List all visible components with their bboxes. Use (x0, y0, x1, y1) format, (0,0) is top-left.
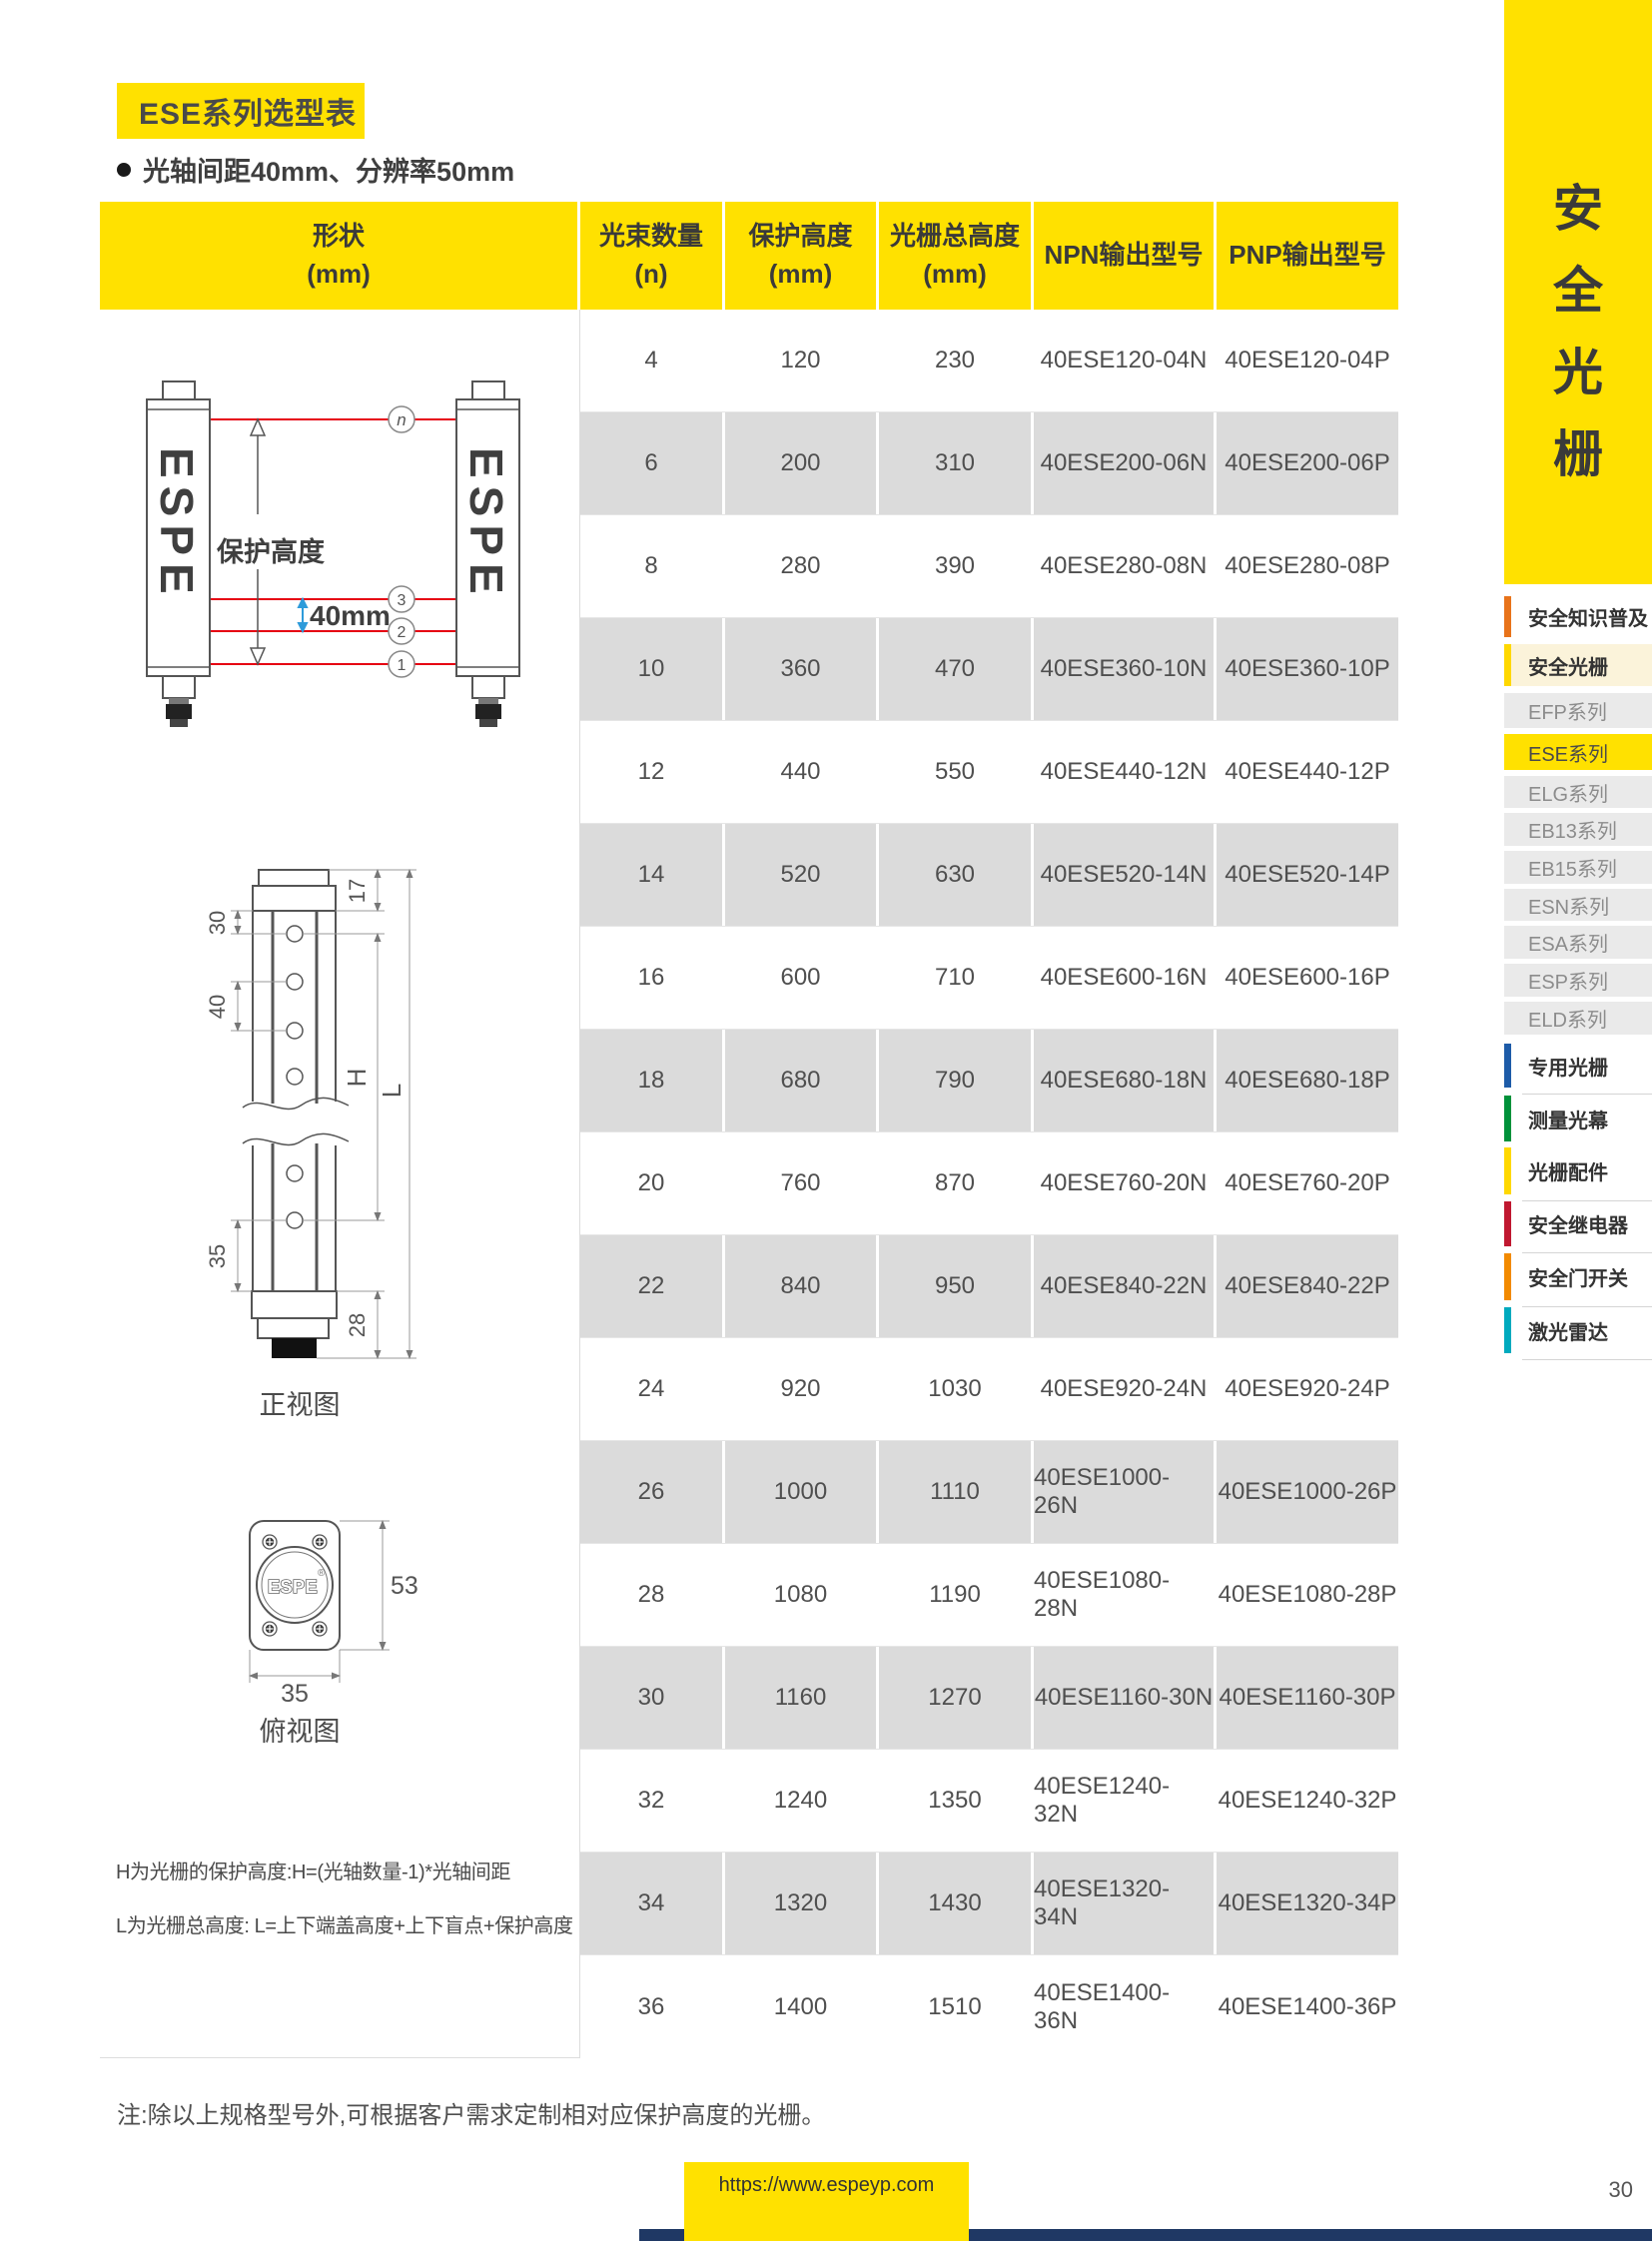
cell-npn-model: 40ESE1320-34N (1034, 1853, 1217, 1954)
sidebar-item-esa-series[interactable]: ESA系列 (1504, 926, 1652, 959)
sidebar-item-special-light-curtain[interactable]: 专用光栅 (1504, 1044, 1652, 1088)
cell-beam-count: 36 (580, 1955, 725, 2058)
cell-beam-count: 8 (580, 515, 725, 617)
cell-npn-model: 40ESE920-24N (1034, 1338, 1217, 1440)
footer-url-box: https://www.espeyp.com (684, 2162, 969, 2241)
front-view-diagram: 17 30 40 H L 35 28 (205, 854, 424, 1413)
category-color-bar (1504, 596, 1511, 637)
sidebar-item-safety-relay[interactable]: 安全继电器 (1504, 1201, 1652, 1246)
beam-number-markers: n 3 2 1 (389, 406, 414, 677)
cell-pnp-model: 40ESE1080-28P (1217, 1544, 1398, 1646)
cell-total-height: 1510 (879, 1955, 1034, 2058)
cell-protection-height: 1320 (725, 1853, 879, 1954)
cell-beam-count: 14 (580, 824, 725, 926)
cell-total-height: 1270 (879, 1647, 1034, 1749)
table-row: 8 280 390 40ESE280-08N 40ESE280-08P (580, 515, 1398, 618)
front-view-connector (272, 1338, 317, 1358)
header-beam-count: 光束数量(n) (580, 202, 725, 310)
cell-pnp-model: 40ESE1400-36P (1217, 1955, 1398, 2058)
sidebar-item-laser-radar[interactable]: 激光雷达 (1504, 1307, 1652, 1353)
cell-beam-count: 12 (580, 721, 725, 823)
table-row: 32 1240 1350 40ESE1240-32N 40ESE1240-32P (580, 1750, 1398, 1853)
table-row: 10 360 470 40ESE360-10N 40ESE360-10P (580, 618, 1398, 721)
top-view-diagram: ESPE ® 53 35 (245, 1513, 429, 1708)
category-color-bar (1504, 644, 1511, 686)
sidebar-category-banner: 安全光栅 (1504, 0, 1652, 584)
cell-npn-model: 40ESE760-20N (1034, 1132, 1217, 1234)
protection-height-label: 保护高度 (216, 536, 325, 567)
cell-pnp-model: 40ESE440-12P (1217, 721, 1398, 823)
cell-protection-height: 600 (725, 927, 879, 1029)
cell-beam-count: 16 (580, 927, 725, 1029)
cell-pnp-model: 40ESE280-08P (1217, 515, 1398, 617)
table-header-row: 形状(mm) 光束数量(n) 保护高度(mm) 光栅总高度(mm) NPN输出型… (100, 202, 1398, 310)
footer-url-link[interactable]: https://www.espeyp.com (719, 2174, 935, 2197)
table-row: 4 120 230 40ESE120-04N 40ESE120-04P (580, 310, 1398, 412)
table-row: 22 840 950 40ESE840-22N 40ESE840-22P (580, 1235, 1398, 1338)
cell-total-height: 1190 (879, 1544, 1034, 1646)
left-connector (166, 698, 192, 727)
cell-npn-model: 40ESE680-18N (1034, 1030, 1217, 1131)
formula-protection-height: H为光栅的保护高度:H=(光轴数量-1)*光轴间距 (116, 1856, 510, 1884)
cell-protection-height: 200 (725, 412, 879, 514)
cell-total-height: 1350 (879, 1750, 1034, 1852)
cell-total-height: 470 (879, 618, 1034, 720)
svg-text:3: 3 (398, 592, 407, 609)
cell-beam-count: 6 (580, 412, 725, 514)
cell-pnp-model: 40ESE1240-32P (1217, 1750, 1398, 1852)
svg-text:1: 1 (398, 657, 407, 674)
cell-total-height: 390 (879, 515, 1034, 617)
custom-order-note: 注:除以上规格型号外,可根据客户需求定制相对应保护高度的光栅。 (117, 2095, 825, 2130)
cell-protection-height: 680 (725, 1030, 879, 1131)
cell-total-height: 1030 (879, 1338, 1034, 1440)
cell-protection-height: 760 (725, 1132, 879, 1234)
formula-total-height: L为光栅总高度: L=上下端盖高度+上下盲点+保护高度 (116, 1909, 573, 1938)
svg-text:40: 40 (205, 995, 230, 1019)
table-row: 24 920 1030 40ESE920-24N 40ESE920-24P (580, 1338, 1398, 1441)
svg-text:L: L (377, 1084, 407, 1098)
cell-total-height: 790 (879, 1030, 1034, 1131)
sidebar-item-safety-door-switch[interactable]: 安全门开关 (1504, 1253, 1652, 1300)
header-total-height: 光栅总高度(mm) (879, 202, 1034, 310)
top-view-height-dim: 53 (391, 1572, 418, 1600)
sidebar-vertical-title: 安全光栅 (1504, 168, 1652, 495)
svg-text:2: 2 (398, 624, 407, 641)
sidebar-item-efp-series[interactable]: EFP系列 (1504, 693, 1652, 728)
cell-protection-height: 840 (725, 1235, 879, 1337)
sidebar-item-ese-series[interactable]: ESE系列 (1504, 734, 1652, 770)
cell-npn-model: 40ESE1000-26N (1034, 1441, 1217, 1543)
page-title: ESE系列选型表 (117, 83, 365, 139)
cell-total-height: 950 (879, 1235, 1034, 1337)
sidebar-item-elg-series[interactable]: ELG系列 (1504, 776, 1652, 808)
cell-protection-height: 520 (725, 824, 879, 926)
shape-column: ESPE ESPE (100, 310, 580, 2058)
sidebar-item-eb13-series[interactable]: EB13系列 (1504, 813, 1652, 846)
sidebar-item-safety-knowledge[interactable]: 安全知识普及 (1504, 596, 1652, 637)
cell-pnp-model: 40ESE920-24P (1217, 1338, 1398, 1440)
sidebar-item-safety-light-curtain[interactable]: 安全光栅 (1504, 644, 1652, 686)
cell-total-height: 230 (879, 310, 1034, 411)
cell-pnp-model: 40ESE520-14P (1217, 824, 1398, 926)
top-view-width-dim: 35 (281, 1680, 309, 1708)
cell-beam-count: 28 (580, 1544, 725, 1646)
cell-pnp-model: 40ESE600-16P (1217, 927, 1398, 1029)
cell-protection-height: 920 (725, 1338, 879, 1440)
cell-beam-count: 22 (580, 1235, 725, 1337)
sidebar-item-light-curtain-accessories[interactable]: 光栅配件 (1504, 1147, 1652, 1194)
cell-beam-count: 32 (580, 1750, 725, 1852)
cell-beam-count: 4 (580, 310, 725, 411)
table-row: 28 1080 1190 40ESE1080-28N 40ESE1080-28P (580, 1544, 1398, 1647)
cell-npn-model: 40ESE1400-36N (1034, 1955, 1217, 2058)
top-view-brand: ESPE (268, 1577, 318, 1597)
cell-protection-height: 1160 (725, 1647, 879, 1749)
table-row: 12 440 550 40ESE440-12N 40ESE440-12P (580, 721, 1398, 824)
table-row: 30 1160 1270 40ESE1160-30N 40ESE1160-30P (580, 1647, 1398, 1750)
svg-text:28: 28 (345, 1313, 370, 1337)
cell-total-height: 1430 (879, 1853, 1034, 1954)
catalog-page: ESE系列选型表 光轴间距40mm、分辨率50mm 形状(mm) 光束数量(n)… (0, 0, 1652, 2241)
svg-text:35: 35 (205, 1244, 230, 1268)
category-color-bar (1504, 1044, 1511, 1088)
cell-npn-model: 40ESE840-22N (1034, 1235, 1217, 1337)
page-number: 30 (1583, 2177, 1633, 2203)
pitch-label: 40mm (310, 600, 391, 631)
cell-total-height: 870 (879, 1132, 1034, 1234)
svg-text:17: 17 (345, 879, 370, 903)
right-tower-brand: ESPE (460, 447, 512, 602)
cell-pnp-model: 40ESE1000-26P (1217, 1441, 1398, 1543)
header-protection-height: 保护高度(mm) (725, 202, 879, 310)
cell-protection-height: 120 (725, 310, 879, 411)
category-color-bar (1504, 1096, 1511, 1141)
cell-beam-count: 10 (580, 618, 725, 720)
left-tower-brand: ESPE (151, 447, 203, 602)
beam-holes (287, 926, 303, 1228)
registered-mark-icon: ® (318, 1568, 326, 1579)
dimension-lines (231, 870, 416, 1358)
cell-npn-model: 40ESE120-04N (1034, 310, 1217, 411)
cell-npn-model: 40ESE1080-28N (1034, 1544, 1217, 1646)
cell-npn-model: 40ESE600-16N (1034, 927, 1217, 1029)
spec-subtitle: 光轴间距40mm、分辨率50mm (117, 150, 514, 189)
cell-npn-model: 40ESE280-08N (1034, 515, 1217, 617)
sidebar-item-eld-series[interactable]: ELD系列 (1504, 1002, 1652, 1035)
table-row: 6 200 310 40ESE200-06N 40ESE200-06P (580, 412, 1398, 515)
svg-text:30: 30 (205, 911, 230, 935)
cell-beam-count: 18 (580, 1030, 725, 1131)
beam-arrangement-diagram: ESPE ESPE (100, 370, 580, 749)
category-color-bar (1504, 1147, 1511, 1194)
cell-protection-height: 1000 (725, 1441, 879, 1543)
table-row: 16 600 710 40ESE600-16N 40ESE600-16P (580, 927, 1398, 1030)
cell-beam-count: 34 (580, 1853, 725, 1954)
cell-total-height: 630 (879, 824, 1034, 926)
selection-table: 形状(mm) 光束数量(n) 保护高度(mm) 光栅总高度(mm) NPN输出型… (100, 202, 1398, 2058)
cell-total-height: 1110 (879, 1441, 1034, 1543)
cell-beam-count: 24 (580, 1338, 725, 1440)
top-view-caption: 俯视图 (230, 1710, 370, 1749)
cell-pnp-model: 40ESE760-20P (1217, 1132, 1398, 1234)
cell-protection-height: 440 (725, 721, 879, 823)
cell-pnp-model: 40ESE840-22P (1217, 1235, 1398, 1337)
cell-pnp-model: 40ESE1320-34P (1217, 1853, 1398, 1954)
table-row: 14 520 630 40ESE520-14N 40ESE520-14P (580, 824, 1398, 927)
cell-pnp-model: 40ESE1160-30P (1217, 1647, 1398, 1749)
cell-total-height: 550 (879, 721, 1034, 823)
cell-beam-count: 20 (580, 1132, 725, 1234)
table-row: 26 1000 1110 40ESE1000-26N 40ESE1000-26P (580, 1441, 1398, 1544)
cell-npn-model: 40ESE1240-32N (1034, 1750, 1217, 1852)
cell-npn-model: 40ESE200-06N (1034, 412, 1217, 514)
right-connector (475, 698, 501, 727)
cell-protection-height: 1240 (725, 1750, 879, 1852)
table-body-rows: 4 120 230 40ESE120-04N 40ESE120-04P 6 20… (580, 310, 1398, 2058)
cell-npn-model: 40ESE440-12N (1034, 721, 1217, 823)
bullet-icon (117, 163, 131, 177)
dimension-labels: 17 30 40 H L 35 28 (205, 879, 407, 1337)
front-view-caption: 正视图 (230, 1383, 370, 1422)
cell-beam-count: 26 (580, 1441, 725, 1543)
sidebar-item-esp-series[interactable]: ESP系列 (1504, 964, 1652, 997)
cell-npn-model: 40ESE360-10N (1034, 618, 1217, 720)
cell-protection-height: 360 (725, 618, 879, 720)
sidebar-item-esn-series[interactable]: ESN系列 (1504, 889, 1652, 921)
category-color-bar (1504, 1307, 1511, 1353)
header-pnp-model: PNP输出型号 (1217, 202, 1398, 310)
svg-text:H: H (342, 1069, 372, 1088)
spec-subtitle-text: 光轴间距40mm、分辨率50mm (143, 150, 514, 189)
cell-npn-model: 40ESE1160-30N (1034, 1647, 1217, 1749)
table-row: 18 680 790 40ESE680-18N 40ESE680-18P (580, 1030, 1398, 1132)
cell-total-height: 310 (879, 412, 1034, 514)
cell-pnp-model: 40ESE200-06P (1217, 412, 1398, 514)
table-row: 20 760 870 40ESE760-20N 40ESE760-20P (580, 1132, 1398, 1235)
cell-total-height: 710 (879, 927, 1034, 1029)
cell-pnp-model: 40ESE680-18P (1217, 1030, 1398, 1131)
sidebar-item-eb15-series[interactable]: EB15系列 (1504, 851, 1652, 884)
header-shape: 形状(mm) (100, 202, 580, 310)
category-color-bar (1504, 1201, 1511, 1246)
pitch-arrow (299, 599, 307, 631)
cell-beam-count: 30 (580, 1647, 725, 1749)
cell-protection-height: 280 (725, 515, 879, 617)
cell-pnp-model: 40ESE360-10P (1217, 618, 1398, 720)
cell-protection-height: 1080 (725, 1544, 879, 1646)
table-row: 34 1320 1430 40ESE1320-34N 40ESE1320-34P (580, 1853, 1398, 1955)
category-color-bar (1504, 1253, 1511, 1300)
svg-text:n: n (397, 410, 406, 429)
header-npn-model: NPN输出型号 (1034, 202, 1217, 310)
cell-npn-model: 40ESE520-14N (1034, 824, 1217, 926)
sidebar-item-measuring-light-curtain[interactable]: 测量光幕 (1504, 1096, 1652, 1141)
cell-pnp-model: 40ESE120-04P (1217, 310, 1398, 411)
table-row: 36 1400 1510 40ESE1400-36N 40ESE1400-36P (580, 1955, 1398, 2058)
cell-protection-height: 1400 (725, 1955, 879, 2058)
